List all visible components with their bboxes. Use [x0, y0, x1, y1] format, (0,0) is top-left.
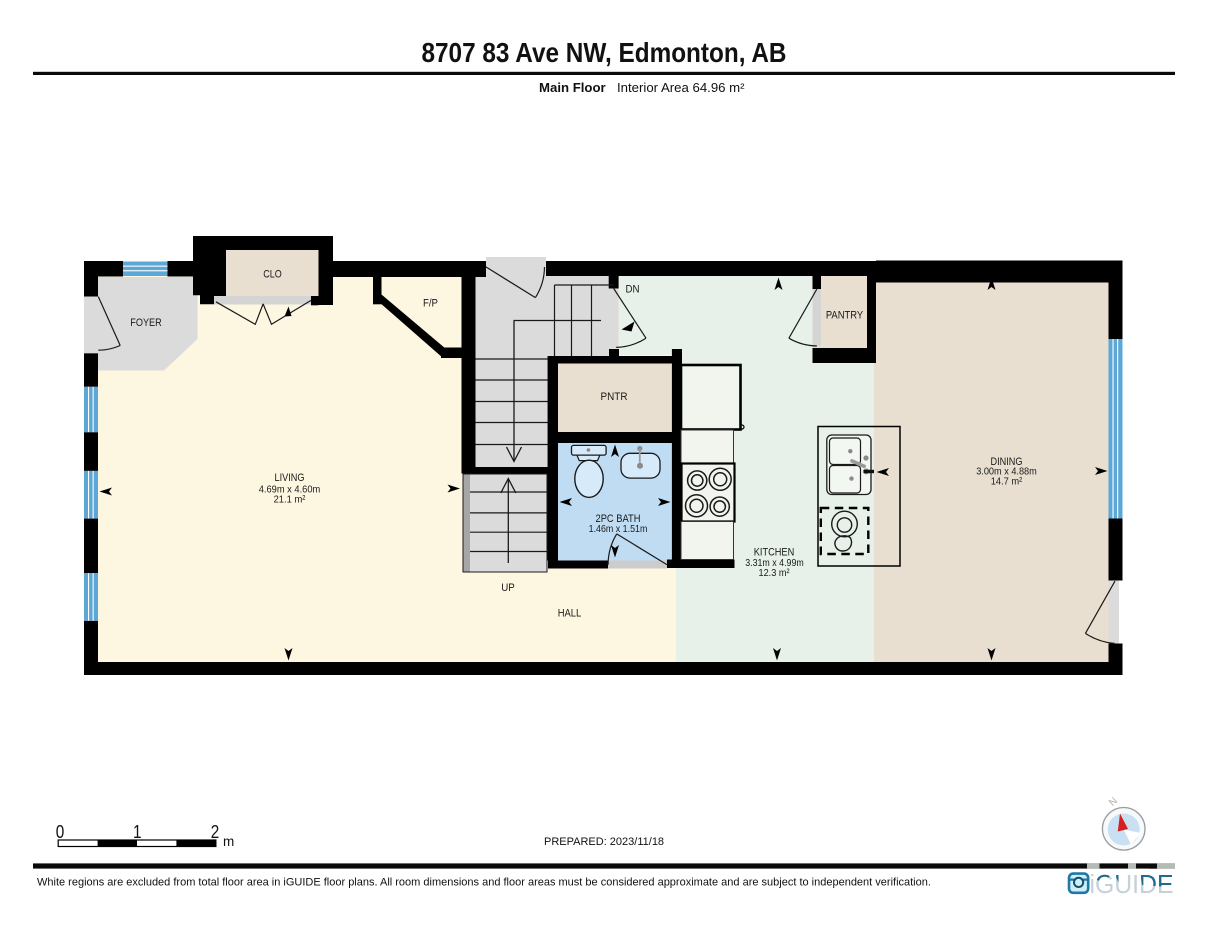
svg-text:1.46m x 1.51m: 1.46m x 1.51m [589, 523, 648, 535]
svg-text:m: m [223, 834, 234, 849]
svg-text:Interior Area 64.96 m²: Interior Area 64.96 m² [617, 80, 745, 95]
svg-text:12.3 m²: 12.3 m² [759, 567, 790, 579]
svg-text:LIVING: LIVING [275, 472, 305, 484]
svg-text:8707 83 Ave NW, Edmonton, AB: 8707 83 Ave NW, Edmonton, AB [422, 37, 787, 68]
svg-text:21.1 m²: 21.1 m² [274, 494, 306, 506]
svg-text:FOYER: FOYER [130, 317, 162, 329]
svg-text:1: 1 [133, 821, 142, 842]
svg-text:UP: UP [501, 582, 515, 594]
svg-text:0: 0 [56, 821, 65, 842]
svg-text:PNTR: PNTR [601, 391, 628, 403]
svg-text:Main Floor: Main Floor [539, 80, 606, 95]
svg-text:14.7 m²: 14.7 m² [991, 476, 1023, 488]
svg-text:White regions are excluded fro: White regions are excluded from total fl… [37, 877, 931, 889]
svg-text:2: 2 [211, 821, 220, 842]
svg-text:F/P: F/P [423, 298, 438, 310]
svg-text:CLO: CLO [263, 269, 282, 281]
svg-text:HALL: HALL [558, 608, 582, 620]
svg-text:PREPARED: 2023/11/18: PREPARED: 2023/11/18 [544, 836, 664, 848]
svg-text:DN: DN [626, 284, 640, 296]
svg-text:PANTRY: PANTRY [826, 310, 864, 322]
